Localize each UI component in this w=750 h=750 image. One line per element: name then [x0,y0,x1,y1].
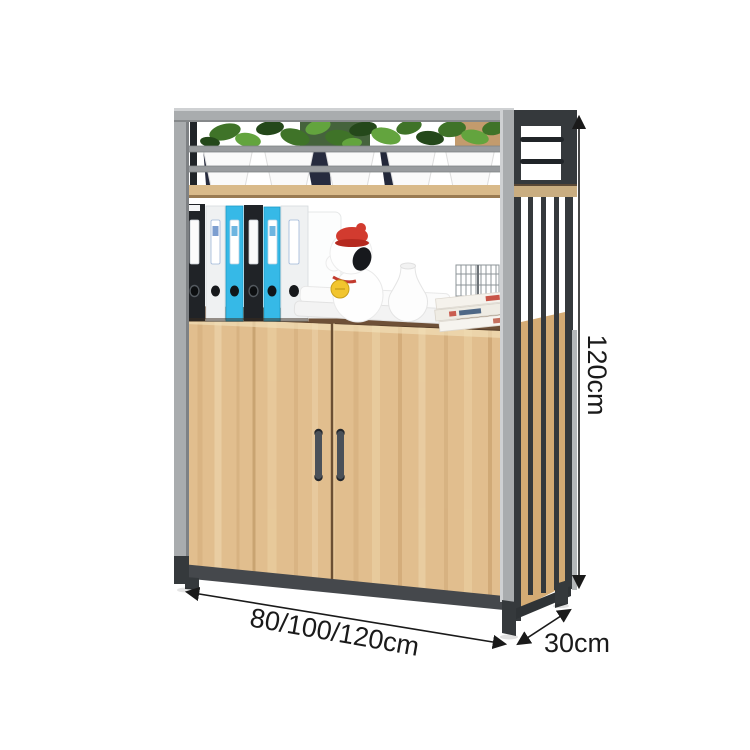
shelf-edge-shadow [186,195,503,198]
product-dimension-image: 120cm 80/100/120cm 30cm [0,0,750,750]
door-handle-right[interactable] [336,429,344,481]
binder-row [184,204,308,322]
side-top-frame [514,110,577,197]
cabinet-doors [186,318,503,601]
front-rail-lower [186,166,503,172]
wire-pen-holder [456,265,499,296]
binder [226,206,243,321]
front-left-leg [174,556,189,584]
top-shelf-section [186,116,507,198]
spine-text-mark [449,311,456,317]
side-back-post-highlight [572,330,577,590]
side-shelf-edge [514,185,577,197]
shelf-items [184,204,517,332]
door-handle-left[interactable] [314,429,322,481]
side-front-post [514,197,521,621]
height-dimension-label: 120cm [582,334,612,415]
width-dimension-label: 80/100/120cm [248,603,422,662]
binder [206,206,225,321]
front-rail-upper [186,146,503,152]
side-rail [520,159,564,164]
back-right-leg [555,580,568,608]
side-slats [528,197,559,595]
white-vase [389,263,428,322]
binder-shadow [184,318,308,322]
binder [264,207,280,321]
cabinet-illustration: 120cm 80/100/120cm 30cm [0,0,750,750]
side-rail [520,137,564,142]
front-right-leg [502,600,516,636]
binder [244,205,263,321]
side-back-post [565,197,573,589]
back-left-post [190,122,197,186]
depth-dimension-label: 30cm [544,628,610,658]
